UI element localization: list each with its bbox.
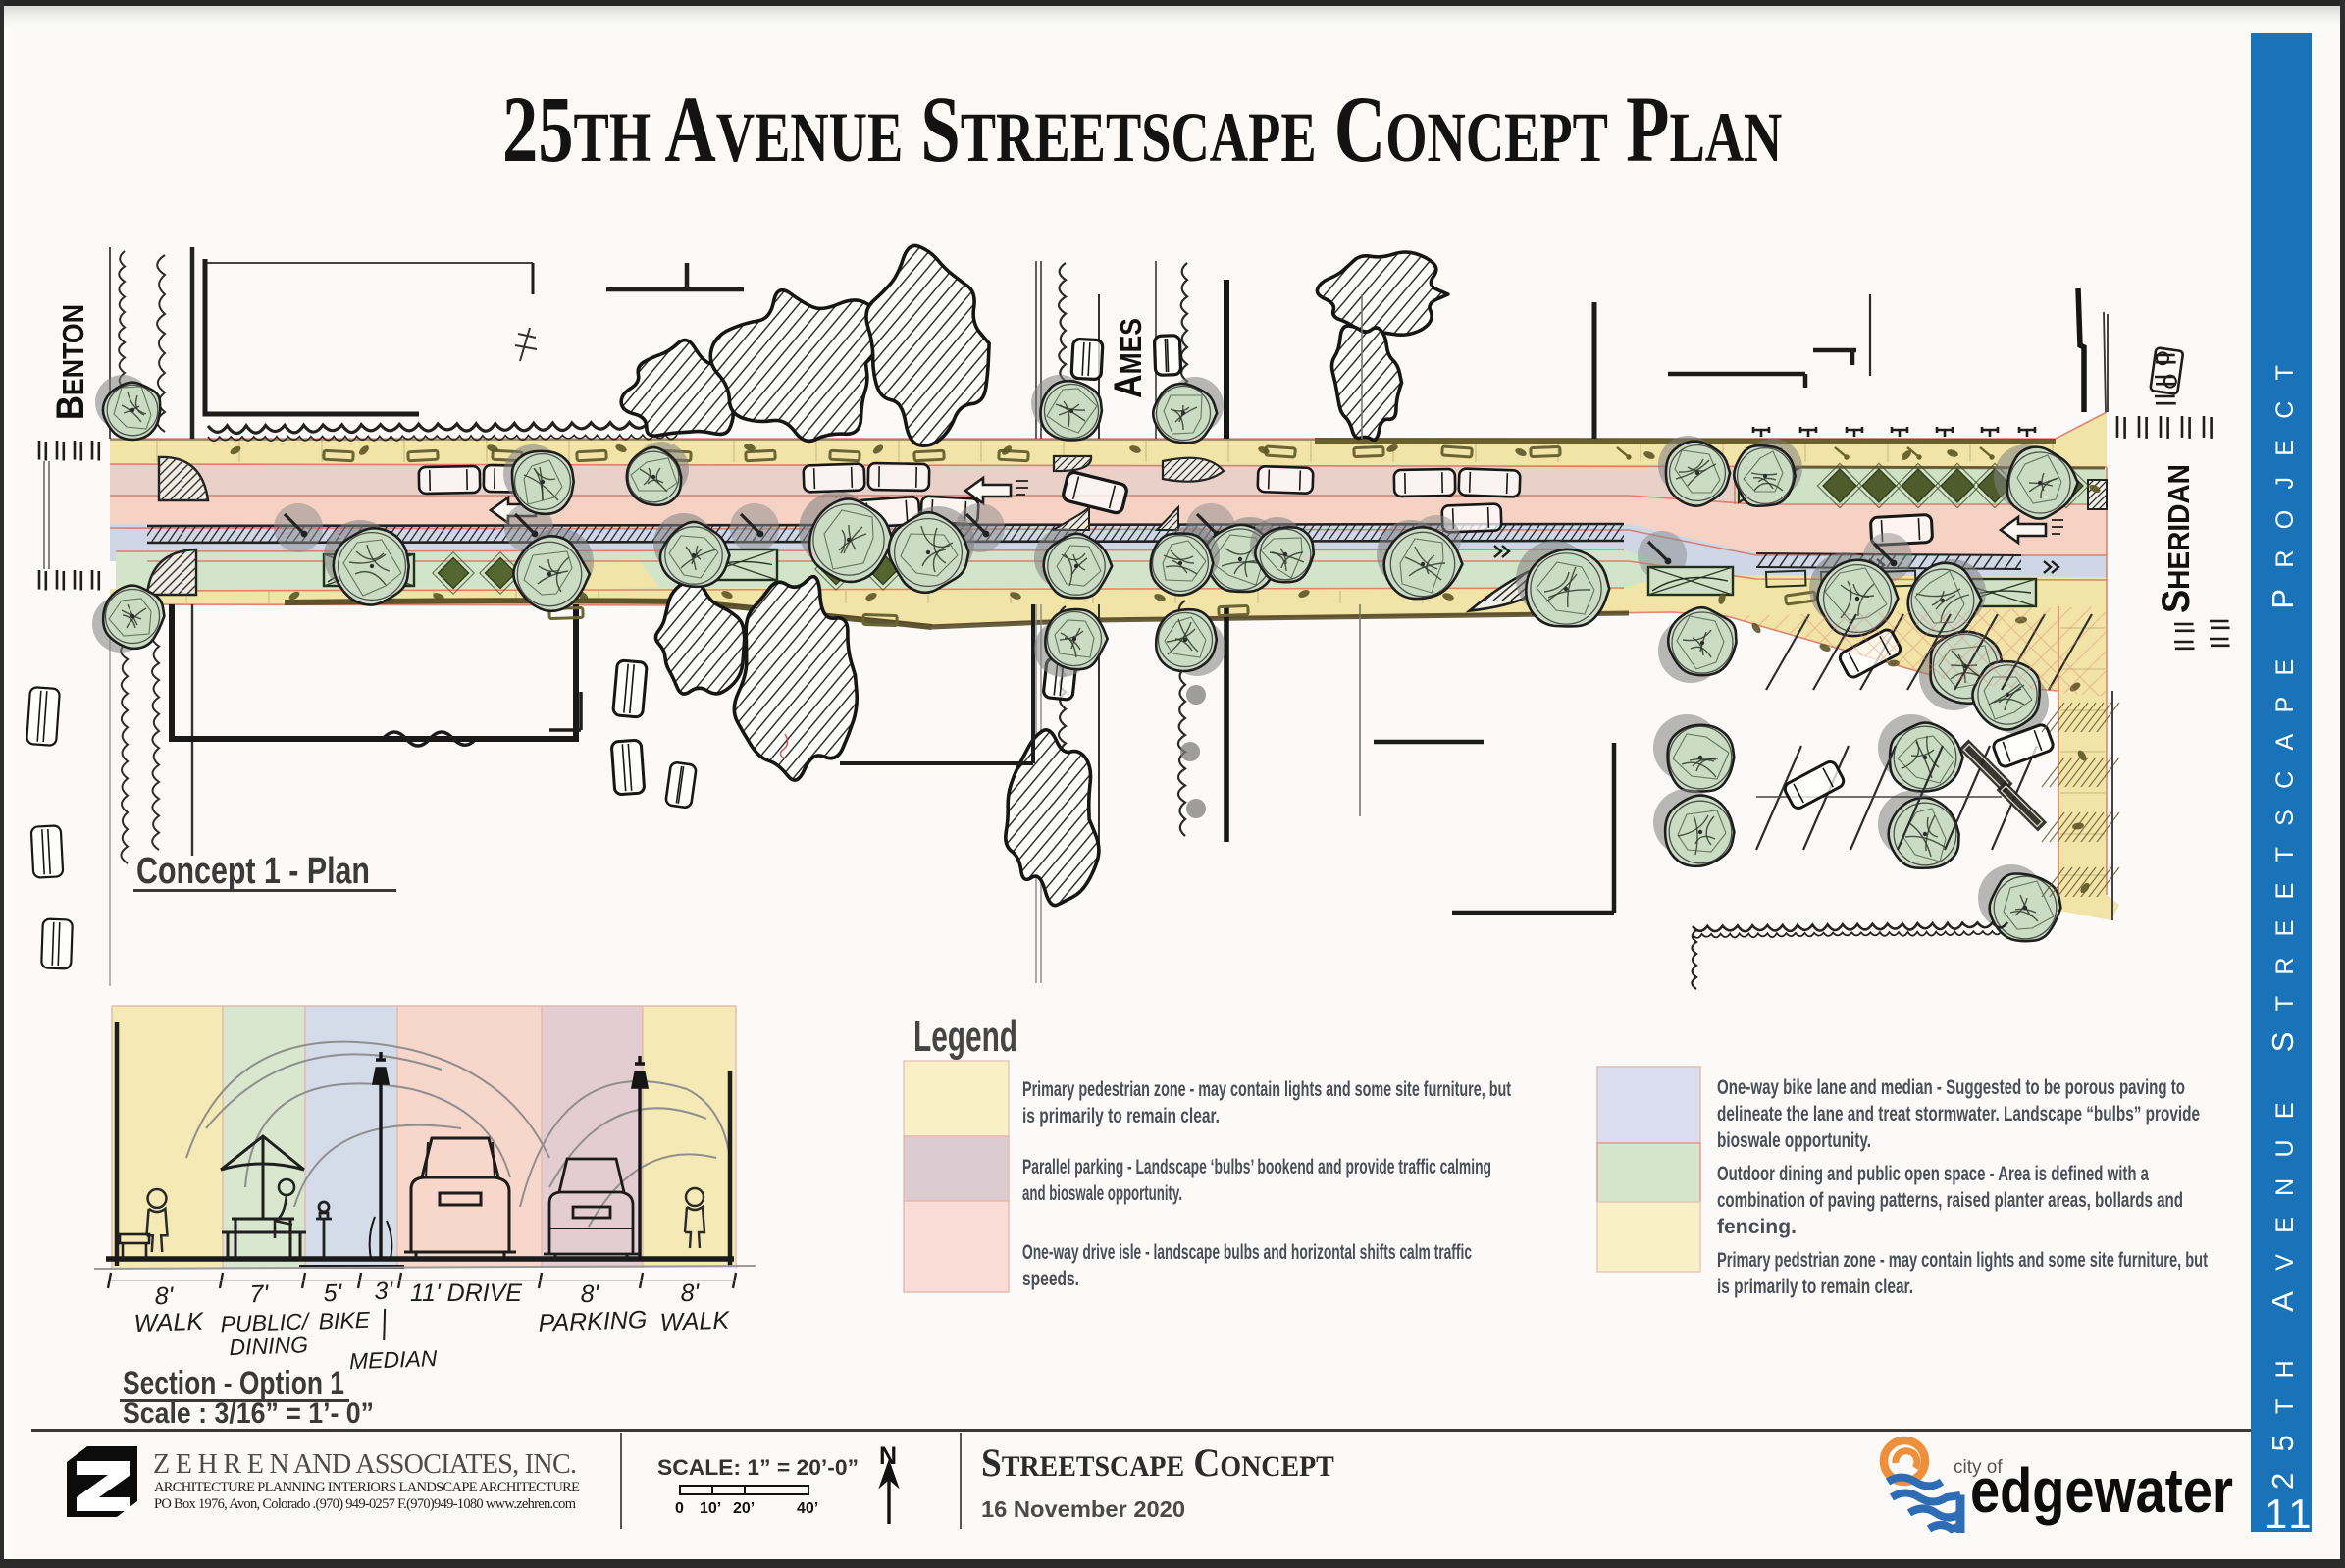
svg-text:One-way drive isle - landscape: One-way drive isle - landscape bulbs and…	[1022, 1241, 1472, 1264]
svg-text:combination of paving patterns: combination of paving patterns, raised p…	[1717, 1189, 2183, 1212]
svg-text:is primarily to remain clear.: is primarily to remain clear.	[1717, 1276, 1913, 1298]
svg-text:delineate the lane and treat s: delineate the lane and treat stormwater.…	[1717, 1103, 2200, 1125]
svg-text:Parallel parking - Landscape ‘: Parallel parking - Landscape ‘bulbs’ boo…	[1022, 1156, 1491, 1178]
svg-text:bioswale opportunity.: bioswale opportunity.	[1717, 1129, 1871, 1152]
svg-text:7': 7'	[249, 1281, 270, 1309]
svg-text:fencing.: fencing.	[1717, 1216, 1797, 1238]
svg-text:40’: 40’	[797, 1500, 818, 1517]
svg-text:MEDIAN: MEDIAN	[349, 1345, 439, 1374]
svg-text:and bioswale opportunity.: and bioswale opportunity.	[1022, 1182, 1182, 1205]
svg-text:PO Box 1976, Avon, Colorado .: PO Box 1976, Avon, Colorado .(970) 949-0…	[154, 1496, 577, 1512]
svg-text:0: 0	[675, 1500, 684, 1517]
svg-text:speeds.: speeds.	[1022, 1268, 1079, 1290]
svg-text:SCALE: 1” = 20’-0”: SCALE: 1” = 20’-0”	[657, 1455, 859, 1480]
svg-text:5': 5'	[323, 1280, 343, 1308]
svg-text:Z E H R E N AND ASSOCIATES, IN: Z E H R E N AND ASSOCIATES, INC.	[153, 1449, 577, 1480]
svg-text:10’: 10’	[700, 1500, 721, 1517]
svg-text:Concept 1 - Plan: Concept 1 - Plan	[136, 851, 370, 892]
svg-text:PARKING: PARKING	[538, 1306, 648, 1337]
svg-text:ARCHITECTURE PLANNING INTERI: ARCHITECTURE PLANNING INTERIORS LANDSCAP…	[154, 1480, 580, 1495]
svg-text:is primarily to remain clear.: is primarily to remain clear.	[1022, 1105, 1220, 1127]
svg-text:11: 11	[2265, 1490, 2316, 1537]
svg-text:8': 8'	[580, 1281, 600, 1309]
svg-text:edgewater: edgewater	[1970, 1455, 2233, 1526]
svg-text:WALK: WALK	[659, 1306, 731, 1335]
svg-text:WALK: WALK	[133, 1308, 205, 1337]
svg-text:DINING: DINING	[229, 1332, 308, 1360]
svg-text:11' DRIVE: 11' DRIVE	[410, 1280, 522, 1307]
svg-text:16 November 2020: 16 November 2020	[981, 1496, 1185, 1522]
svg-text:8': 8'	[680, 1280, 701, 1308]
svg-text:Scale : 3/16” = 1’- 0”: Scale : 3/16” = 1’- 0”	[123, 1397, 374, 1430]
svg-text:25TH AVENUE STREETSCAPE PROJEC: 25TH AVENUE STREETSCAPE PROJECT	[2266, 344, 2300, 1490]
svg-text:One-way bike lane and median -: One-way bike lane and median - Suggested…	[1717, 1076, 2185, 1099]
svg-text:3': 3'	[374, 1278, 394, 1306]
svg-text:Legend: Legend	[913, 1013, 1017, 1061]
svg-text:Primary pedestrian zone - may: Primary pedestrian zone - may contain li…	[1022, 1078, 1511, 1101]
svg-text:Outdoor dining and public open: Outdoor dining and public open space - A…	[1717, 1163, 2149, 1185]
svg-text:20’: 20’	[733, 1500, 755, 1517]
svg-text:Primary pedstrian zone - may c: Primary pedstrian zone - may contain lig…	[1717, 1249, 2208, 1272]
svg-text:8': 8'	[154, 1282, 175, 1311]
svg-text:BIKE: BIKE	[318, 1307, 371, 1334]
